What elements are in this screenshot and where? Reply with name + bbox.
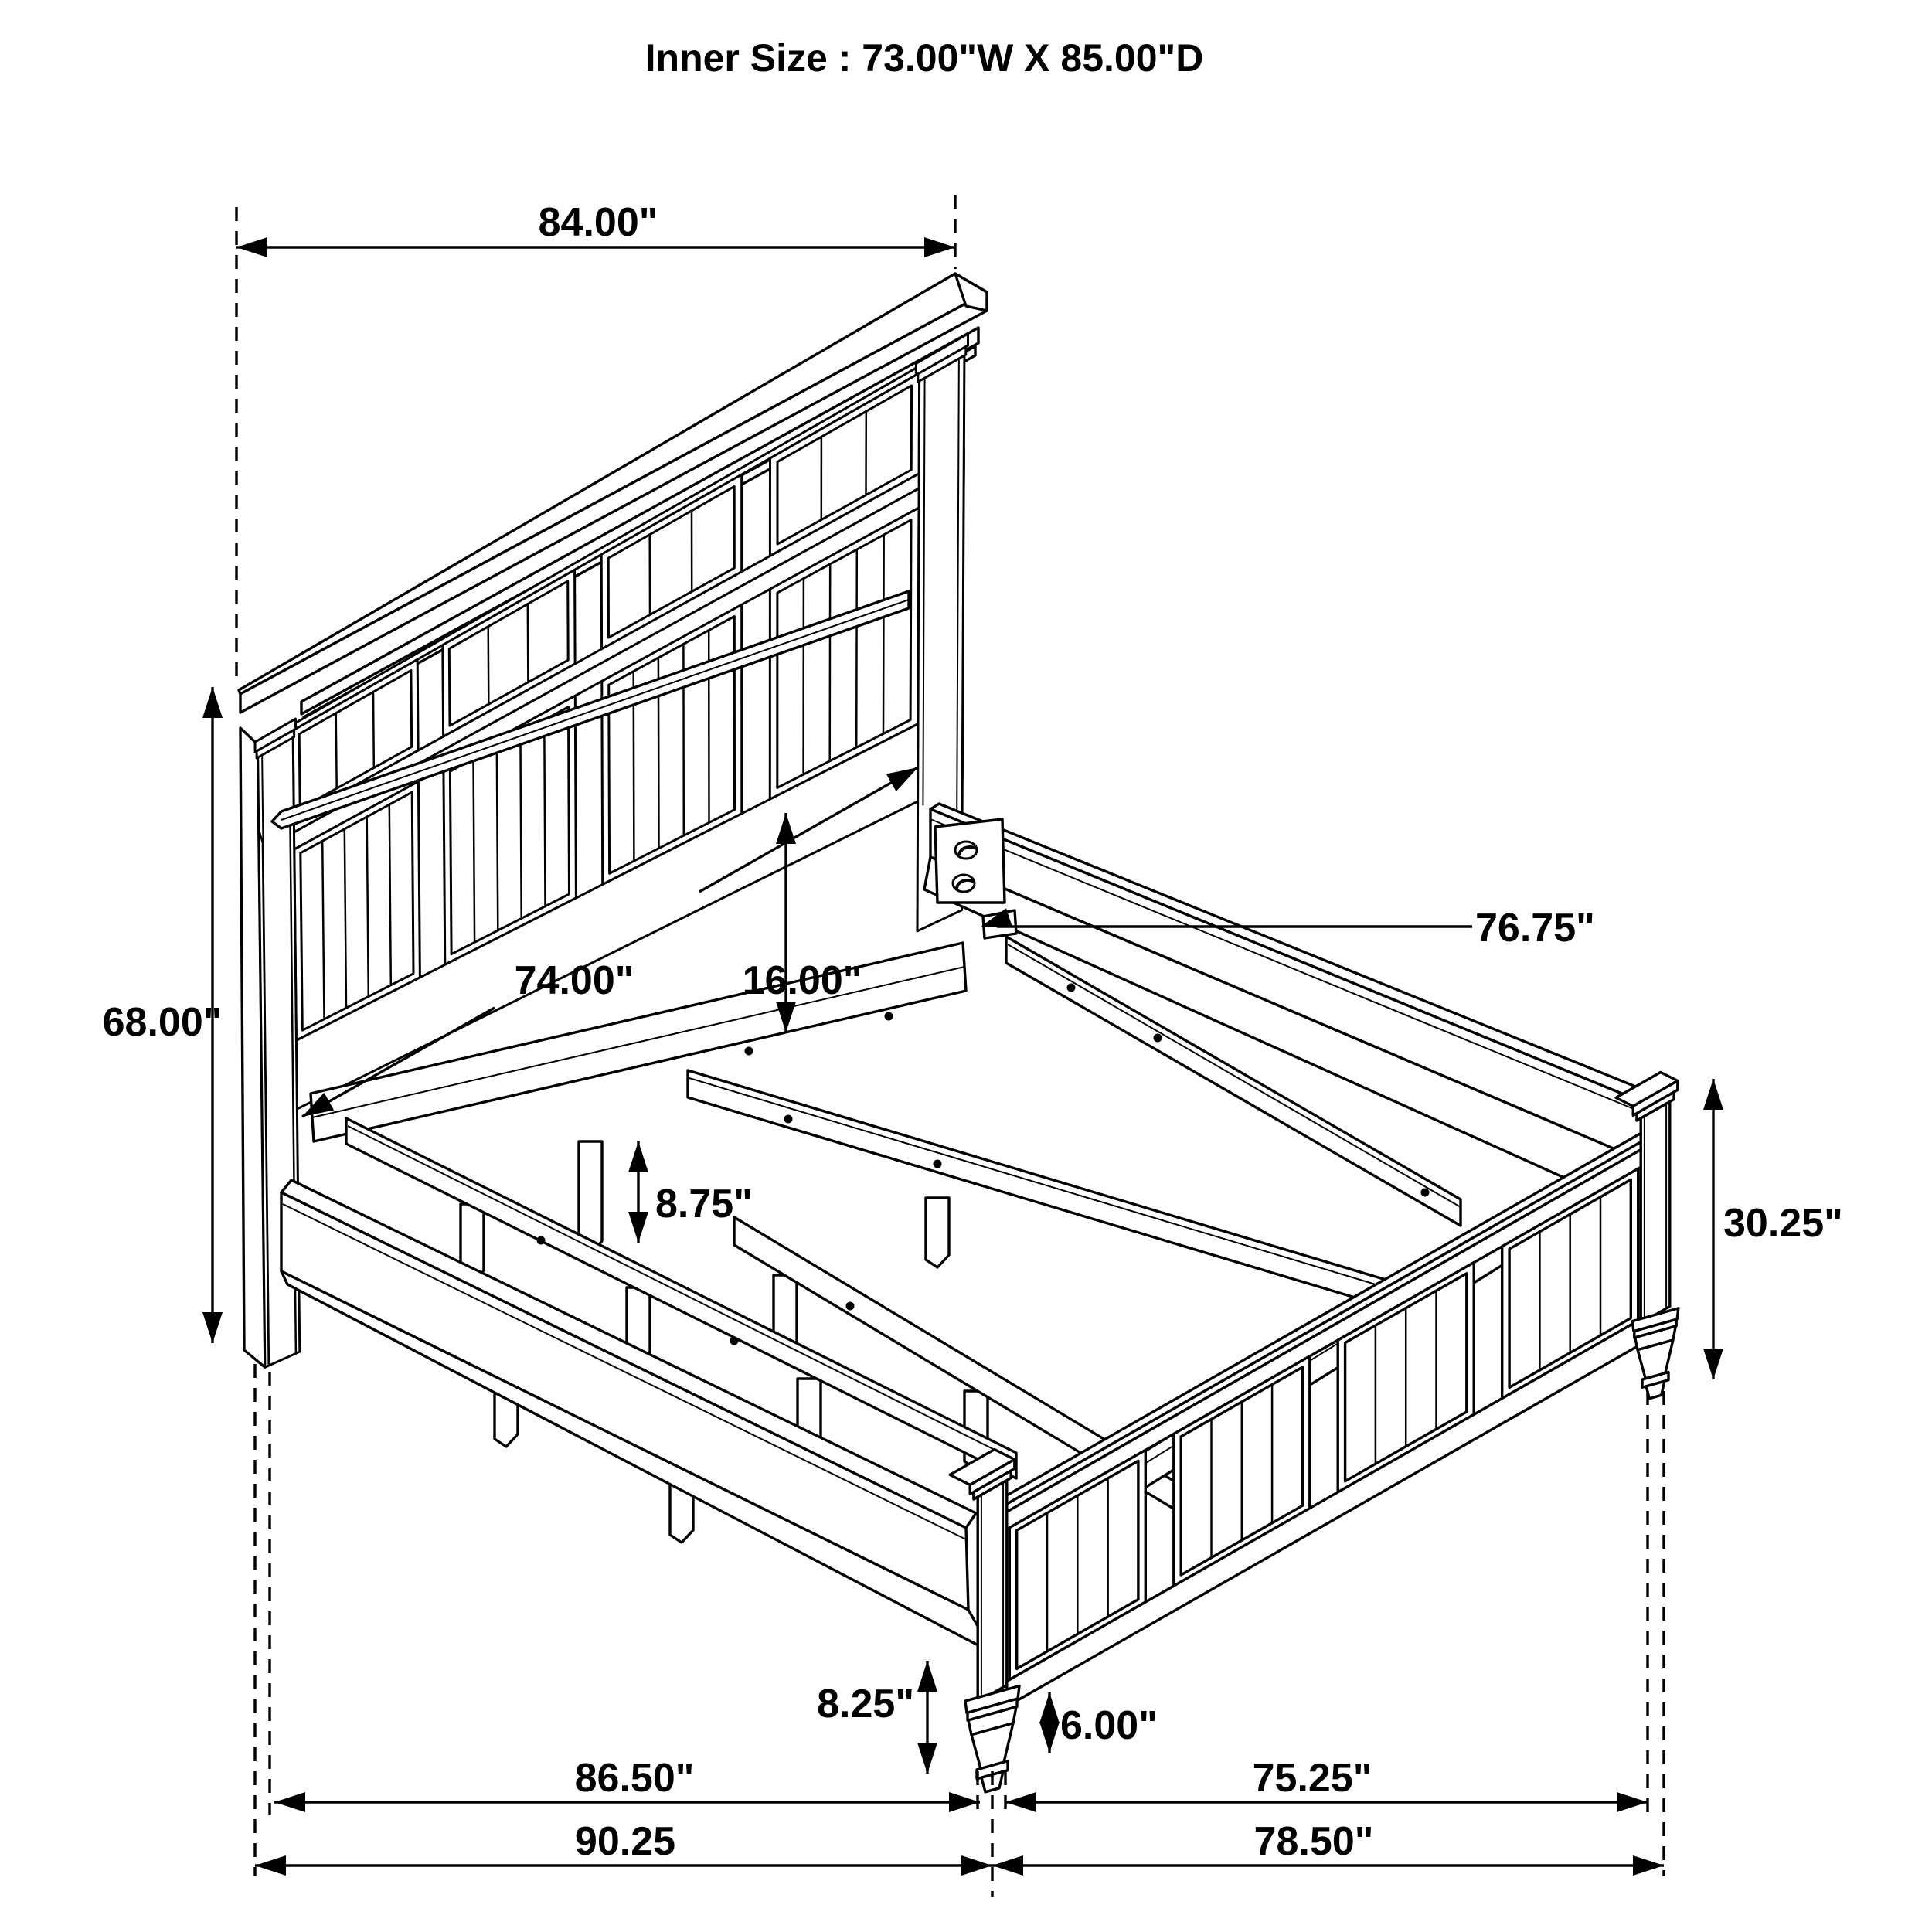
svg-text:86.50": 86.50"	[575, 1756, 695, 1801]
svg-text:68.00": 68.00"	[103, 1000, 223, 1045]
svg-text:8.25": 8.25"	[817, 1682, 914, 1726]
svg-text:78.50": 78.50"	[1254, 1819, 1374, 1864]
svg-text:Inner Size : 73.00"W X 85.00"D: Inner Size : 73.00"W X 85.00"D	[645, 36, 1204, 80]
svg-text:76.75": 76.75"	[1475, 906, 1595, 951]
svg-text:30.25": 30.25"	[1723, 1201, 1843, 1246]
svg-text:84.00": 84.00"	[539, 200, 658, 245]
svg-text:74.00": 74.00"	[515, 958, 634, 1003]
svg-text:6.00": 6.00"	[1060, 1703, 1158, 1748]
svg-text:75.25": 75.25"	[1253, 1756, 1372, 1801]
svg-text:8.75": 8.75"	[655, 1182, 753, 1226]
svg-text:16.00": 16.00"	[743, 958, 862, 1003]
svg-text:90.25: 90.25	[575, 1819, 675, 1864]
